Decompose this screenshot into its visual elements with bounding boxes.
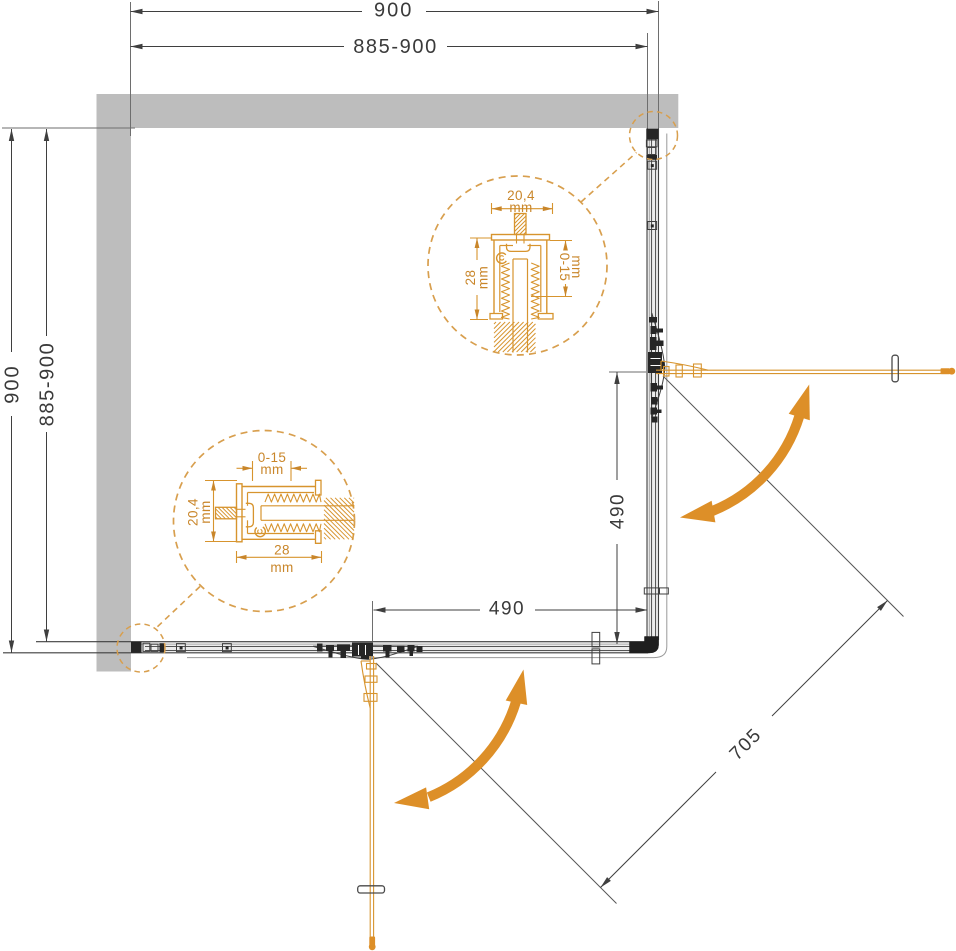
svg-text:mm: mm: [270, 560, 293, 575]
svg-text:490: 490: [608, 493, 629, 529]
svg-text:490: 490: [489, 599, 525, 620]
svg-text:885-900: 885-900: [37, 342, 59, 427]
svg-text:900: 900: [2, 364, 24, 403]
svg-text:885-900: 885-900: [353, 36, 438, 58]
svg-text:mm: mm: [260, 462, 283, 477]
svg-text:28: 28: [274, 543, 290, 558]
svg-text:mm: mm: [476, 266, 491, 289]
svg-text:mm: mm: [198, 500, 213, 523]
svg-text:mm: mm: [569, 255, 584, 278]
svg-text:900: 900: [374, 0, 413, 22]
svg-text:mm: mm: [509, 200, 532, 215]
